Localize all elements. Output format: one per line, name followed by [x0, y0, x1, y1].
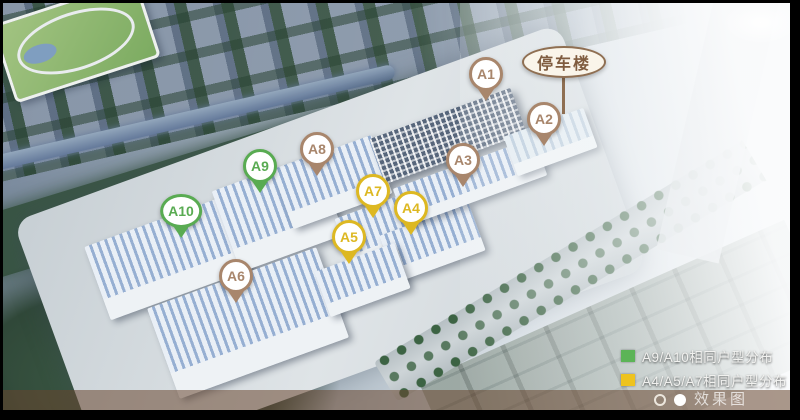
- carousel-dot-filled[interactable]: [674, 394, 686, 406]
- marker-label: A4: [402, 200, 420, 216]
- aerial-render-view: 停车楼 A1 A2 A3 A4 A5 A6 A7 A8 A9 A10 A9/A1…: [0, 0, 800, 420]
- marker-a9: A9: [243, 149, 277, 183]
- marker-label: A2: [535, 111, 553, 127]
- marker-a6: A6: [219, 259, 253, 293]
- callout-pointer-line: [562, 74, 565, 114]
- view-caption: 效果图: [694, 390, 748, 410]
- caption-bar: 效果图: [3, 390, 790, 410]
- legend-label: A4/A5/A7相同户型分布: [642, 370, 787, 390]
- letterbox-right: [790, 0, 800, 420]
- legend: A9/A10相同户型分布 A4/A5/A7相同户型分布: [621, 342, 787, 394]
- marker-label: A3: [454, 152, 472, 168]
- marker-a3: A3: [446, 143, 480, 177]
- green-swatch-icon: [621, 350, 635, 362]
- letterbox-top: [0, 0, 800, 3]
- marker-label: A5: [340, 229, 358, 245]
- callout-label: 停车楼: [537, 50, 591, 74]
- marker-a8: A8: [300, 132, 334, 166]
- marker-a5: A5: [332, 220, 366, 254]
- legend-label: A9/A10相同户型分布: [642, 346, 773, 366]
- marker-label: A8: [308, 141, 326, 157]
- legend-row-yellow: A4/A5/A7相同户型分布: [621, 370, 787, 390]
- marker-label: A6: [227, 268, 245, 284]
- parking-building-callout: 停车楼: [522, 46, 606, 78]
- marker-label: A1: [477, 66, 495, 82]
- marker-label: A9: [251, 158, 269, 174]
- letterbox-bottom: [0, 410, 800, 420]
- legend-row-green: A9/A10相同户型分布: [621, 346, 787, 366]
- letterbox-left: [0, 0, 3, 420]
- marker-a1: A1: [469, 57, 503, 91]
- marker-a7: A7: [356, 174, 390, 208]
- marker-a2: A2: [527, 102, 561, 136]
- yellow-swatch-icon: [621, 374, 635, 386]
- carousel-dot-outline[interactable]: [654, 394, 666, 406]
- marker-label: A7: [364, 183, 382, 199]
- marker-a10: A10: [160, 194, 202, 228]
- marker-label: A10: [168, 203, 194, 219]
- marker-a4: A4: [394, 191, 428, 225]
